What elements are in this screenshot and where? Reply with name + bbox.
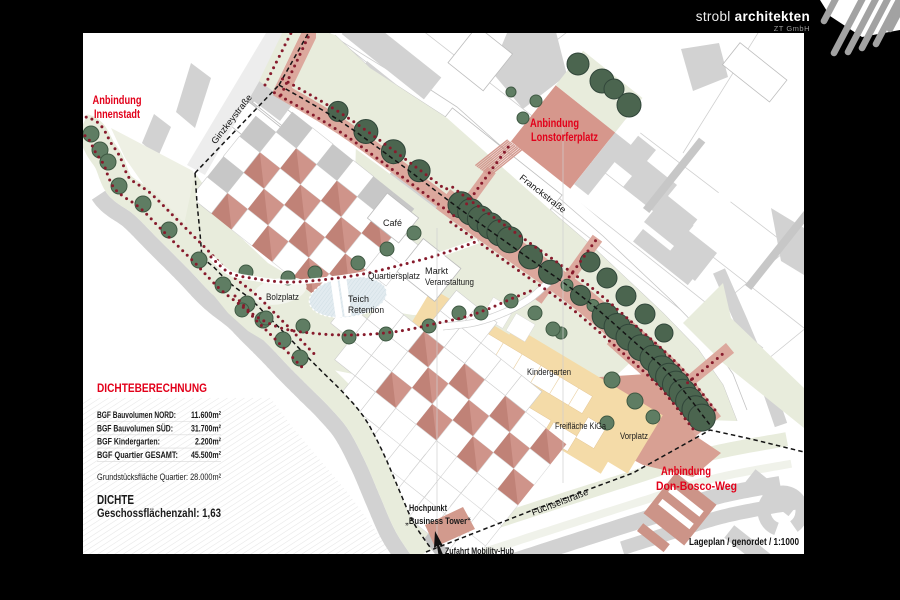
svg-text:Lageplan / genordet / 1:1000: Lageplan / genordet / 1:1000 [689,536,799,548]
svg-text:Anbindung: Anbindung [93,95,142,107]
svg-text:Retention: Retention [348,305,384,315]
svg-text:11.600m²: 11.600m² [191,410,221,421]
svg-text:Anbindung: Anbindung [661,466,711,478]
svg-text:BGF Kindergarten:: BGF Kindergarten: [97,437,160,448]
svg-text:Freifläche KiGa: Freifläche KiGa [555,421,606,431]
svg-text:31.700m²: 31.700m² [191,423,221,434]
svg-text:Innenstadt: Innenstadt [94,109,140,121]
svg-text:Vorplatz: Vorplatz [620,431,648,441]
svg-text:Teich: Teich [348,294,369,304]
svg-text:DICHTEBERECHNUNG: DICHTEBERECHNUNG [97,383,207,395]
svg-text:BGF Quartier GESAMT:: BGF Quartier GESAMT: [97,450,178,461]
svg-text:Markt: Markt [425,266,449,276]
svg-text:Hochpunkt: Hochpunkt [409,503,448,514]
svg-text:DICHTE: DICHTE [97,492,134,507]
svg-text:Zufahrt Mobility-Hub: Zufahrt Mobility-Hub [445,546,514,554]
svg-text:Quartiersplatz: Quartiersplatz [368,271,420,281]
svg-text:Veranstaltung: Veranstaltung [425,277,474,287]
svg-text:Bolzplatz: Bolzplatz [266,292,299,302]
svg-text:Kindergarten: Kindergarten [527,367,571,377]
svg-text:Grundstücksfläche Quartier: 28: Grundstücksfläche Quartier: 28.000m² [97,472,221,483]
svg-text:Don-Bosco-Weg: Don-Bosco-Weg [656,481,737,493]
svg-text:BGF Bauvolumen SÜD:: BGF Bauvolumen SÜD: [97,423,173,434]
svg-text:45.500m²: 45.500m² [191,450,221,461]
svg-text:Lonstorferplatz: Lonstorferplatz [531,132,598,144]
svg-text:2.200m²: 2.200m² [195,437,221,448]
svg-text:Geschossflächenzahl: 1,63: Geschossflächenzahl: 1,63 [97,506,221,520]
svg-text:Anbindung: Anbindung [530,118,579,130]
svg-text:Café: Café [383,218,402,228]
svg-text:„Business Tower“: „Business Tower“ [405,516,471,527]
svg-text:BGF Bauvolumen NORD:: BGF Bauvolumen NORD: [97,410,176,421]
